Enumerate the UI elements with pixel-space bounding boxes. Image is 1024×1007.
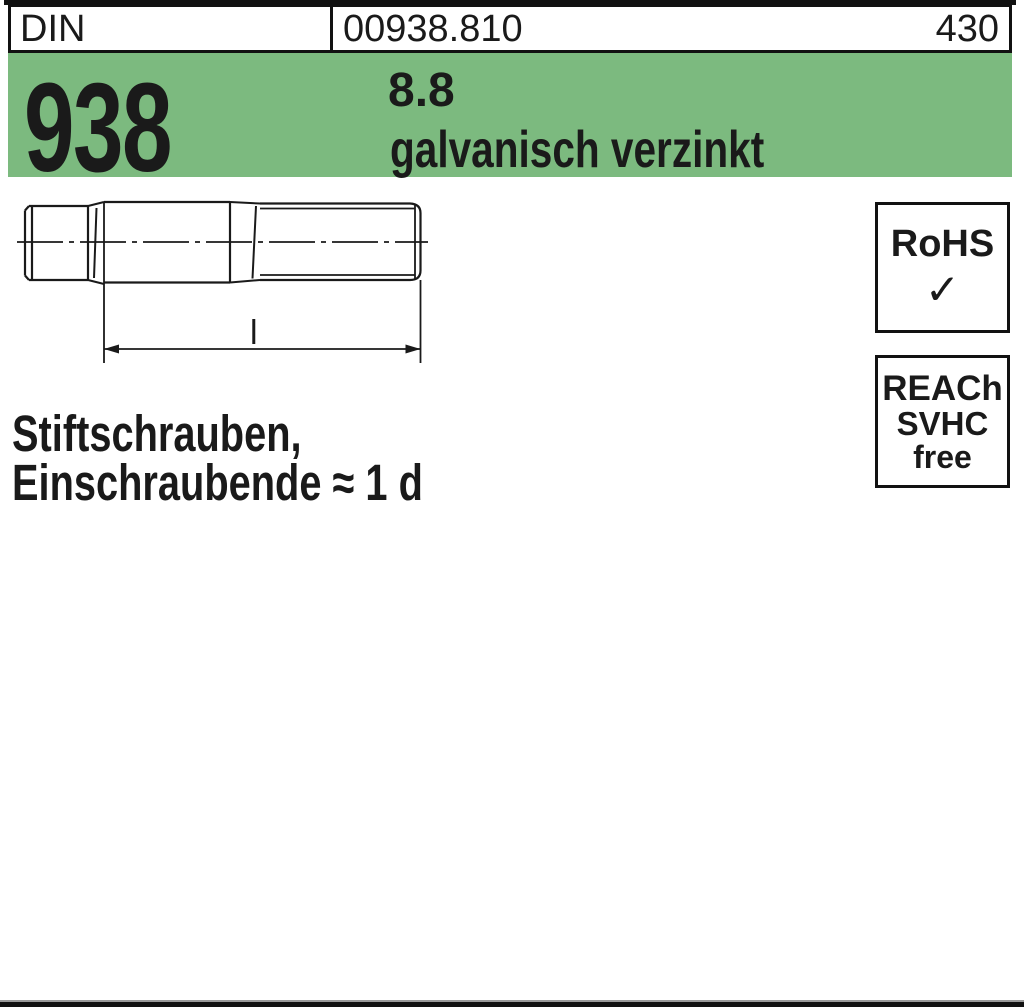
checkmark-icon: ✓ bbox=[925, 269, 960, 311]
din-standard-number: 938 bbox=[24, 65, 171, 191]
din-label: DIN bbox=[20, 10, 85, 48]
arrowhead-left bbox=[104, 345, 119, 354]
bottom-black-bar bbox=[0, 1000, 1024, 1007]
reach-line-2: SVHC bbox=[897, 407, 989, 441]
rohs-label: RoHS bbox=[891, 225, 994, 263]
arrowhead-right bbox=[406, 345, 421, 354]
header-article-cell: 00938.810 430 bbox=[330, 4, 1012, 53]
product-title: Stiftschrauben, Einschraubende ≈ 1 d bbox=[12, 409, 423, 507]
reach-line-3: free bbox=[913, 441, 972, 474]
left-thread bbox=[25, 206, 88, 280]
strength-class: 8.8 bbox=[388, 67, 455, 115]
page-number: 430 bbox=[936, 10, 999, 48]
left-thread-runout bbox=[88, 202, 104, 284]
reach-line-1: REACh bbox=[882, 370, 1003, 407]
dimension-label: l bbox=[250, 314, 258, 352]
header-din-cell: DIN bbox=[8, 4, 333, 53]
rohs-badge: RoHS ✓ bbox=[875, 202, 1010, 333]
surface-finish: galvanisch verzinkt bbox=[390, 124, 764, 176]
product-title-line1: Stiftschrauben, bbox=[12, 409, 423, 458]
reach-badge: REACh SVHC free bbox=[875, 355, 1010, 488]
stud-bolt-drawing: l bbox=[0, 185, 450, 380]
article-number: 00938.810 bbox=[343, 10, 523, 48]
product-title-line2: Einschraubende ≈ 1 d bbox=[12, 458, 423, 507]
catalog-card: DIN 00938.810 430 938 8.8 galvanisch ver… bbox=[0, 0, 1024, 1007]
